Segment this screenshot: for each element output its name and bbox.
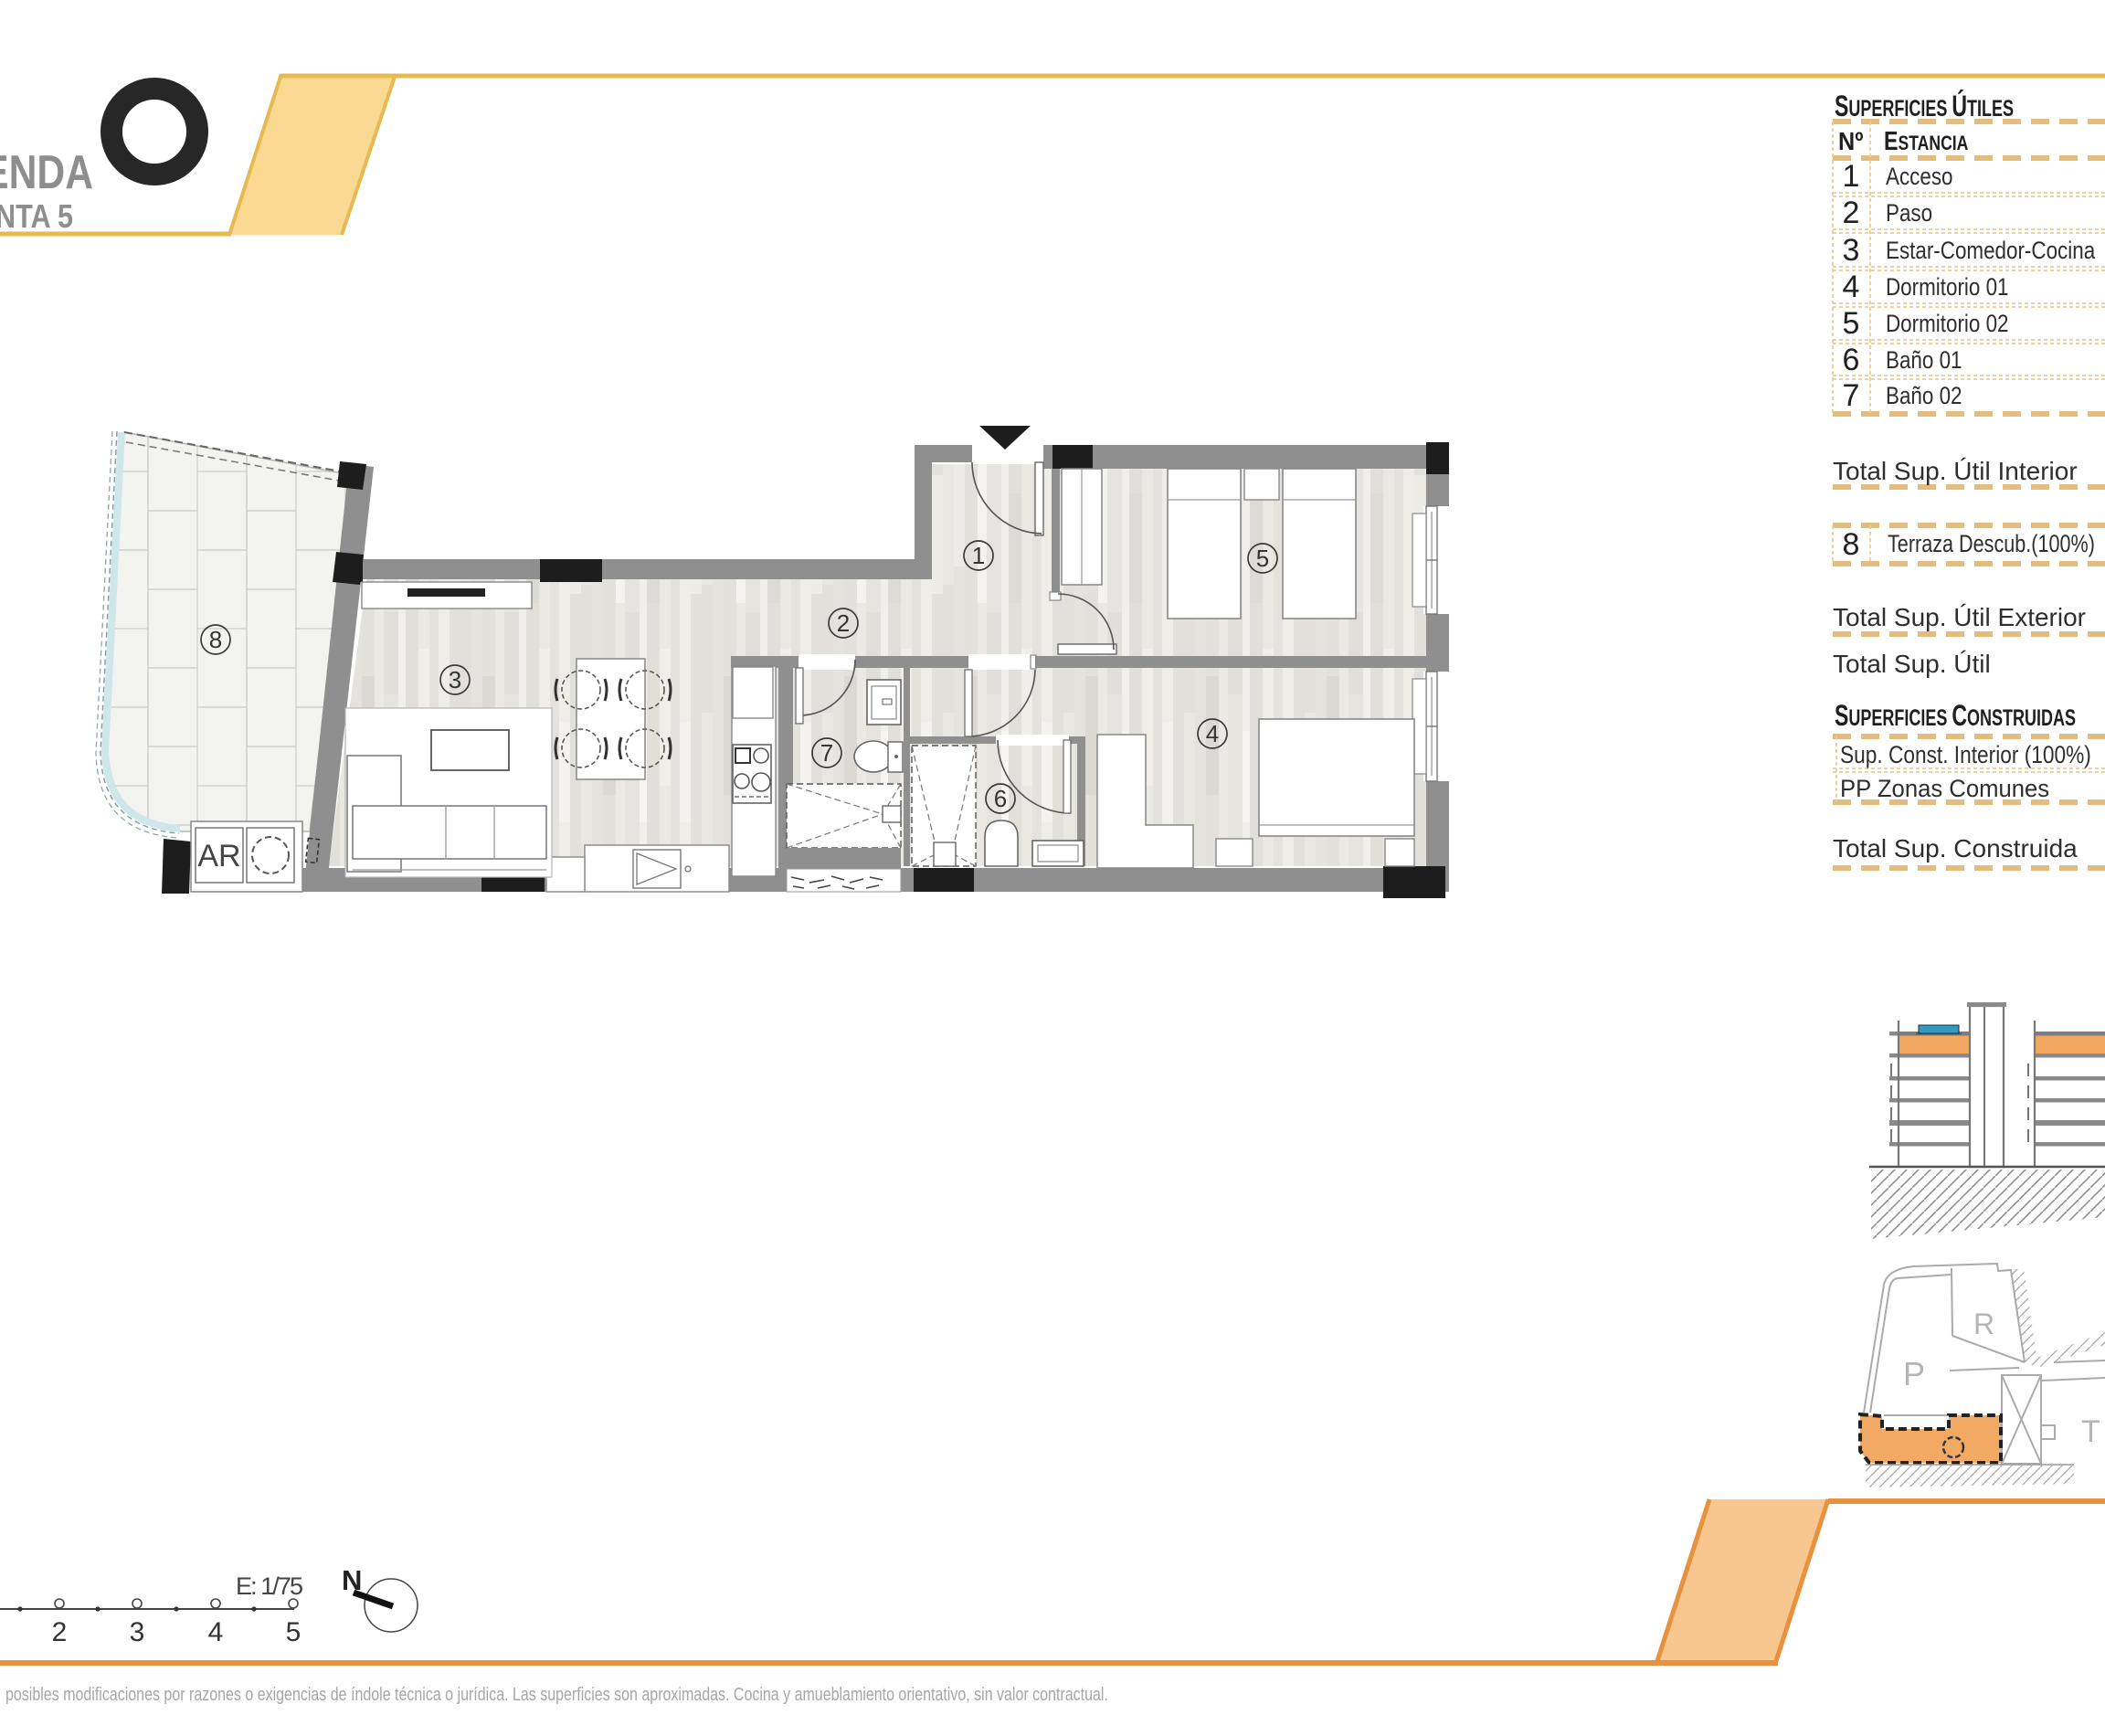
svg-text:P: P xyxy=(1903,1355,1925,1392)
svg-text:2: 2 xyxy=(837,609,850,637)
svg-text:E: 1/75: E: 1/75 xyxy=(236,1572,303,1600)
svg-text:1: 1 xyxy=(972,542,985,569)
svg-text:4: 4 xyxy=(1206,720,1219,747)
svg-text:AR: AR xyxy=(197,839,240,873)
svg-text:3: 3 xyxy=(130,1617,145,1647)
svg-text:R: R xyxy=(1973,1307,1994,1340)
svg-text:2: 2 xyxy=(52,1617,68,1647)
svg-text:8: 8 xyxy=(209,626,222,653)
svg-text:4: 4 xyxy=(208,1617,224,1647)
svg-text:5: 5 xyxy=(286,1617,301,1647)
svg-text:6: 6 xyxy=(994,785,1007,812)
svg-text:5: 5 xyxy=(1256,545,1269,572)
svg-text:7: 7 xyxy=(820,739,833,767)
svg-text:T: T xyxy=(2081,1414,2100,1449)
svg-text:3: 3 xyxy=(449,666,461,693)
